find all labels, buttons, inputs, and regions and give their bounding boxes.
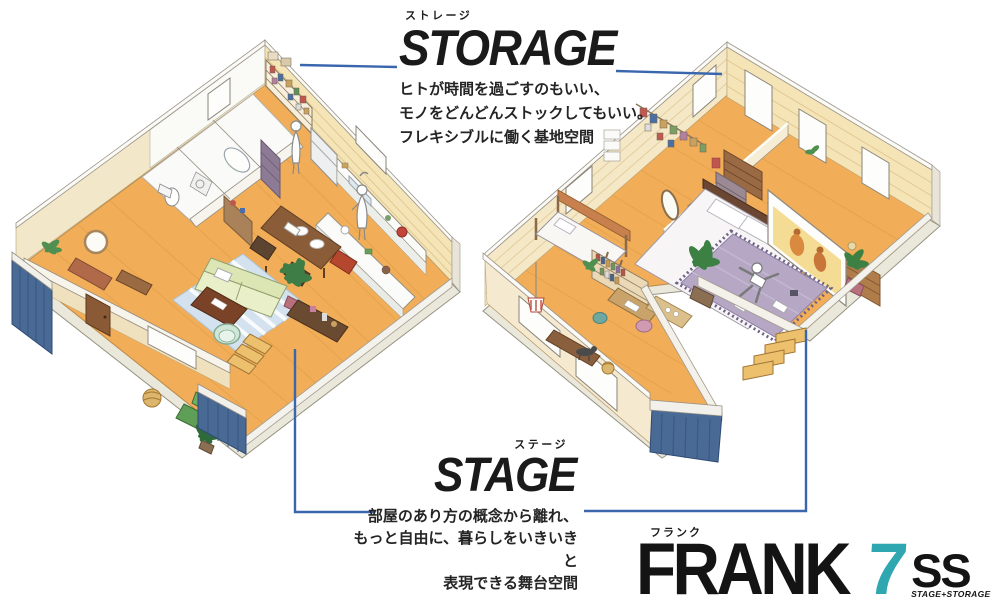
- book: [790, 290, 798, 296]
- stage-desc-line: 表現できる舞台空間: [352, 573, 578, 596]
- stage-label-block: ステージ STAGE 部屋のあり方の概念から離れ、 もっと自由に、暮らしをいきい…: [352, 436, 578, 596]
- storage-title: STORAGE: [399, 23, 632, 74]
- basket: [143, 389, 161, 407]
- logo-number-7: 7: [865, 542, 910, 599]
- stage-title: STAGE: [370, 452, 576, 501]
- brochure-page: ストレージ STORAGE ヒトが時間を過ごすのもいい、 モノをどんどんストック…: [0, 0, 1000, 607]
- chair-pink: [636, 320, 652, 332]
- brand-logo: フランク FRANK 7 SS STAGE+STORAGE: [636, 524, 990, 599]
- storage-floorplan-illustration: [12, 40, 460, 458]
- logo-row: FRANK 7 SS STAGE+STORAGE: [636, 542, 990, 599]
- round-mirror: [85, 231, 107, 253]
- storage-desc-line: フレキシブルに働く基地空間: [399, 126, 652, 150]
- storage-description: ヒトが時間を過ごすのもいい、 モノをどんどんストックしてもいい。 フレキシブルに…: [399, 78, 652, 150]
- stage-desc-line: もっと自由に、暮らしをいきいきと: [352, 528, 578, 573]
- mint-armchair: [214, 324, 240, 344]
- red-kettle: [397, 227, 407, 237]
- logo-tagline: STAGE+STORAGE: [911, 589, 990, 599]
- storage-desc-line: モノをどんどんストックしてもいい。: [399, 102, 652, 126]
- logo-suffix-column: SS STAGE+STORAGE: [911, 553, 990, 599]
- chair-teal: [593, 313, 607, 324]
- logo-suffix-text: SS: [911, 553, 970, 588]
- storage-desc-line: ヒトが時間を過ごすのもいい、: [399, 78, 652, 102]
- basket: [602, 362, 614, 374]
- lamp: [848, 242, 856, 250]
- logo-brand-text: FRANK: [636, 542, 848, 599]
- storage-left-connector: [300, 65, 397, 67]
- storage-label-block: ストレージ STORAGE ヒトが時間を過ごすのもいい、 モノをどんどんストック…: [399, 7, 652, 150]
- stage-desc-line: 部屋のあり方の概念から離れ、: [352, 506, 578, 529]
- navy-accent-wall: [650, 400, 722, 462]
- stage-description: 部屋のあり方の概念から離れ、 もっと自由に、暮らしをいきいきと 表現できる舞台空…: [352, 506, 578, 596]
